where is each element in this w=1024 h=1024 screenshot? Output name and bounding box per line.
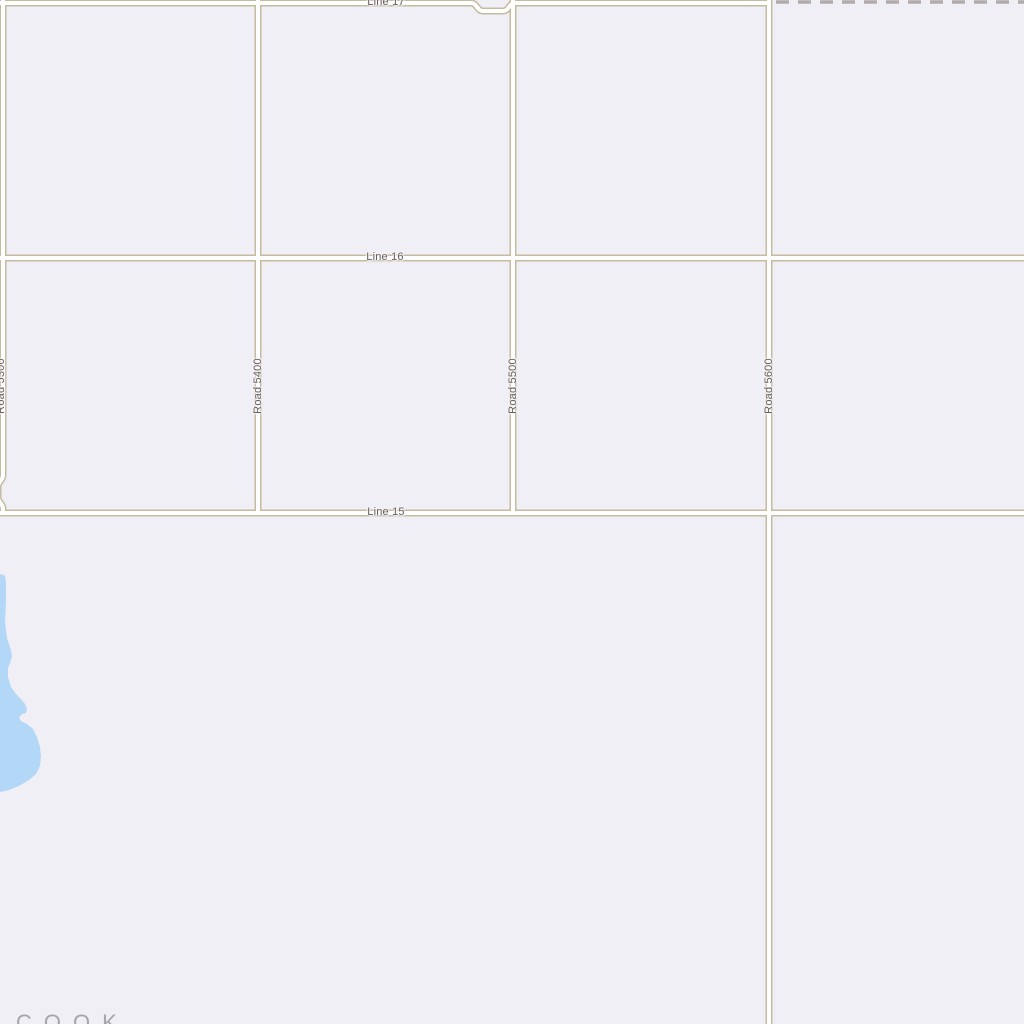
road-label-line-17: Line 17 xyxy=(367,0,405,8)
road-fills xyxy=(0,0,1024,1024)
water-body-lake xyxy=(0,574,41,792)
road-label-road-5600: Road 5600 xyxy=(763,358,775,414)
map-tiles xyxy=(0,0,1024,1024)
map-canvas[interactable]: Line 17 Line 16 Line 15 Road 5300 Road 5… xyxy=(0,0,1024,1024)
road-label-road-5300: Road 5300 xyxy=(0,358,7,414)
road-label-line-16: Line 16 xyxy=(366,251,404,263)
road-label-road-5400: Road 5400 xyxy=(252,358,264,414)
road-label-road-5500: Road 5500 xyxy=(507,358,519,414)
area-label-county: COOK xyxy=(16,1011,129,1024)
road-label-line-15: Line 15 xyxy=(367,506,405,518)
